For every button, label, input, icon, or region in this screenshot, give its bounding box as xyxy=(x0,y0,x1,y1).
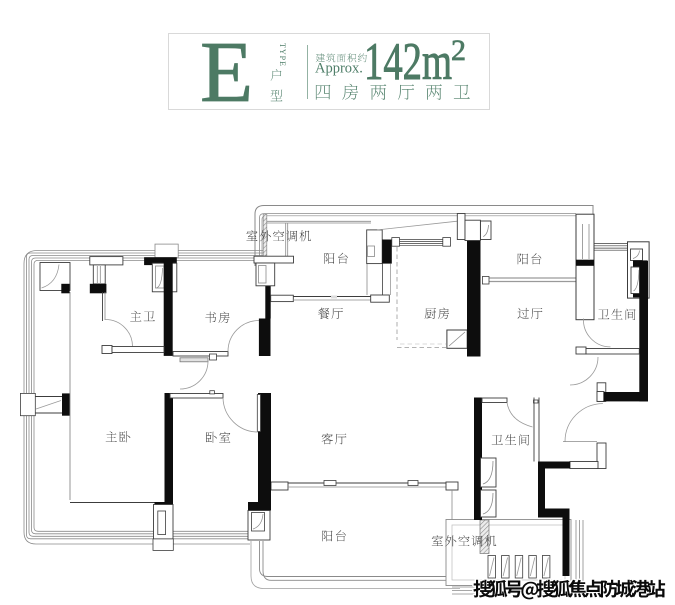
svg-text:TYPE: TYPE xyxy=(278,43,287,67)
svg-text:142m: 142m xyxy=(364,33,452,91)
svg-text:2: 2 xyxy=(451,34,466,67)
svg-text:Approx.: Approx. xyxy=(315,61,363,77)
svg-text:E: E xyxy=(200,23,253,120)
